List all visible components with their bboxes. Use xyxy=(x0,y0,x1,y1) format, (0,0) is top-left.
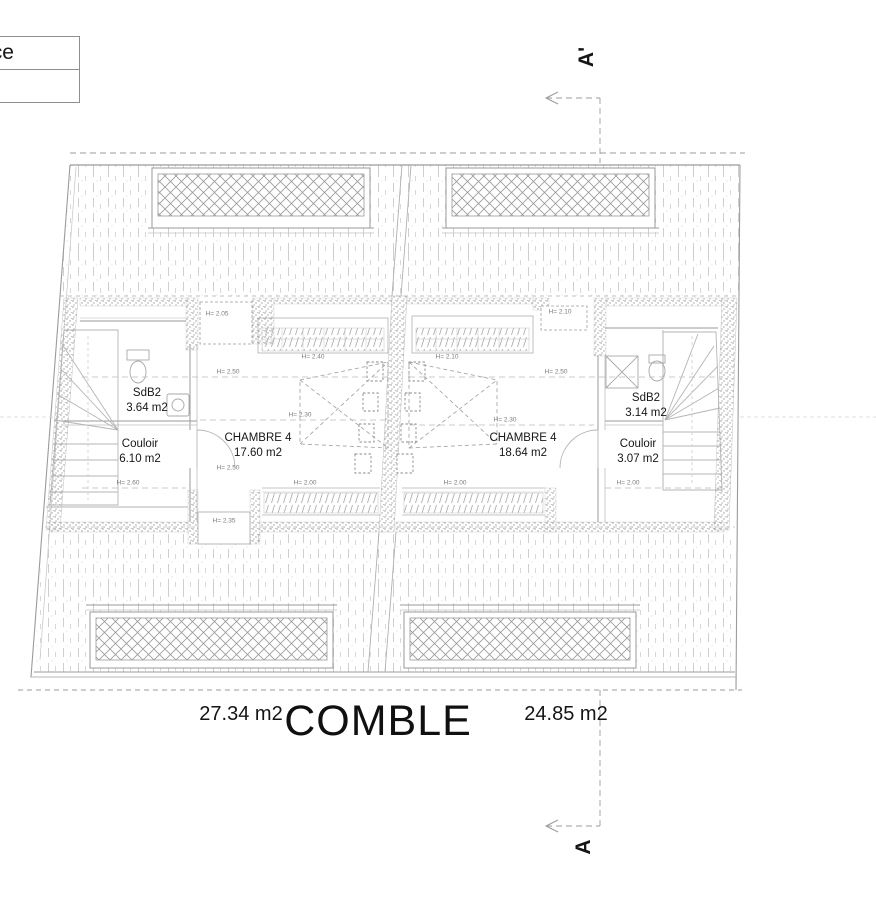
skylight-top-left xyxy=(148,168,374,233)
room-name: SdB2 xyxy=(625,391,667,406)
room-name: Couloir xyxy=(119,437,161,452)
room-area: 17.60 m2 xyxy=(224,446,291,461)
shower-right xyxy=(606,356,638,388)
height-label: H= 2.35 xyxy=(213,518,236,525)
height-label: H= 2.50 xyxy=(217,465,240,472)
unit-area-left: 27.34 m2 xyxy=(199,703,282,726)
skylight-bottom-right xyxy=(400,605,640,668)
height-label: H= 2.10 xyxy=(549,309,572,316)
height-label: H= 2.60 xyxy=(117,480,140,487)
washbasin-left xyxy=(167,394,189,416)
skylight-bottom-left xyxy=(86,605,337,668)
legend-table: enance 0ca xyxy=(0,36,80,103)
height-label: H= 2.00 xyxy=(294,480,317,487)
height-label: H= 2.40 xyxy=(302,354,325,361)
room-label-couloir-right: Couloir 3.07 m2 xyxy=(617,437,659,466)
section-marker-top: A' xyxy=(575,47,599,67)
room-name: SdB2 xyxy=(126,386,168,401)
door-right-chambre xyxy=(560,430,598,468)
room-area: 3.14 m2 xyxy=(625,406,667,421)
staircase-right xyxy=(663,332,722,490)
room-label-chambre-right: CHAMBRE 4 18.64 m2 xyxy=(489,431,556,460)
room-name: Couloir xyxy=(617,437,659,452)
height-label: H= 2.10 xyxy=(436,354,459,361)
section-marker-bottom: A xyxy=(572,839,596,854)
room-label-sdb2-right: SdB2 3.14 m2 xyxy=(625,391,667,420)
floor-plan-page: enance 0ca A' A SdB2 3.64 m2 Couloir 6.1… xyxy=(0,0,876,900)
height-label: H= 2.30 xyxy=(289,412,312,419)
legend-row-2: 0ca xyxy=(0,69,79,102)
room-area: 3.64 m2 xyxy=(126,401,168,416)
closet-band-bottom-left xyxy=(262,488,380,515)
page-title: COMBLE xyxy=(284,697,472,746)
room-area: 6.10 m2 xyxy=(119,452,161,467)
room-name: CHAMBRE 4 xyxy=(224,431,291,446)
legend-row-1: enance xyxy=(0,37,79,69)
section-line-top xyxy=(546,92,600,163)
height-label: H= 2.00 xyxy=(617,480,640,487)
height-label: H= 2.50 xyxy=(545,369,568,376)
height-label: H= 2.50 xyxy=(217,369,240,376)
closet-band-top-left xyxy=(258,318,388,353)
room-area: 3.07 m2 xyxy=(617,452,659,467)
room-name: CHAMBRE 4 xyxy=(489,431,556,446)
closet-band-top-right xyxy=(412,316,533,353)
toilet-left xyxy=(127,350,149,383)
room-area: 18.64 m2 xyxy=(489,446,556,461)
room-label-chambre-left: CHAMBRE 4 17.60 m2 xyxy=(224,431,291,460)
wall-niche-left xyxy=(200,302,252,344)
height-label: H= 2.30 xyxy=(494,417,517,424)
closet-band-bottom-right xyxy=(402,488,545,515)
skylight-top-right xyxy=(442,168,659,233)
room-label-couloir-left: Couloir 6.10 m2 xyxy=(119,437,161,466)
height-label: H= 2.05 xyxy=(206,311,229,318)
height-label: H= 2.00 xyxy=(444,480,467,487)
room-label-sdb2-left: SdB2 3.64 m2 xyxy=(126,386,168,415)
unit-area-right: 24.85 m2 xyxy=(524,703,607,726)
